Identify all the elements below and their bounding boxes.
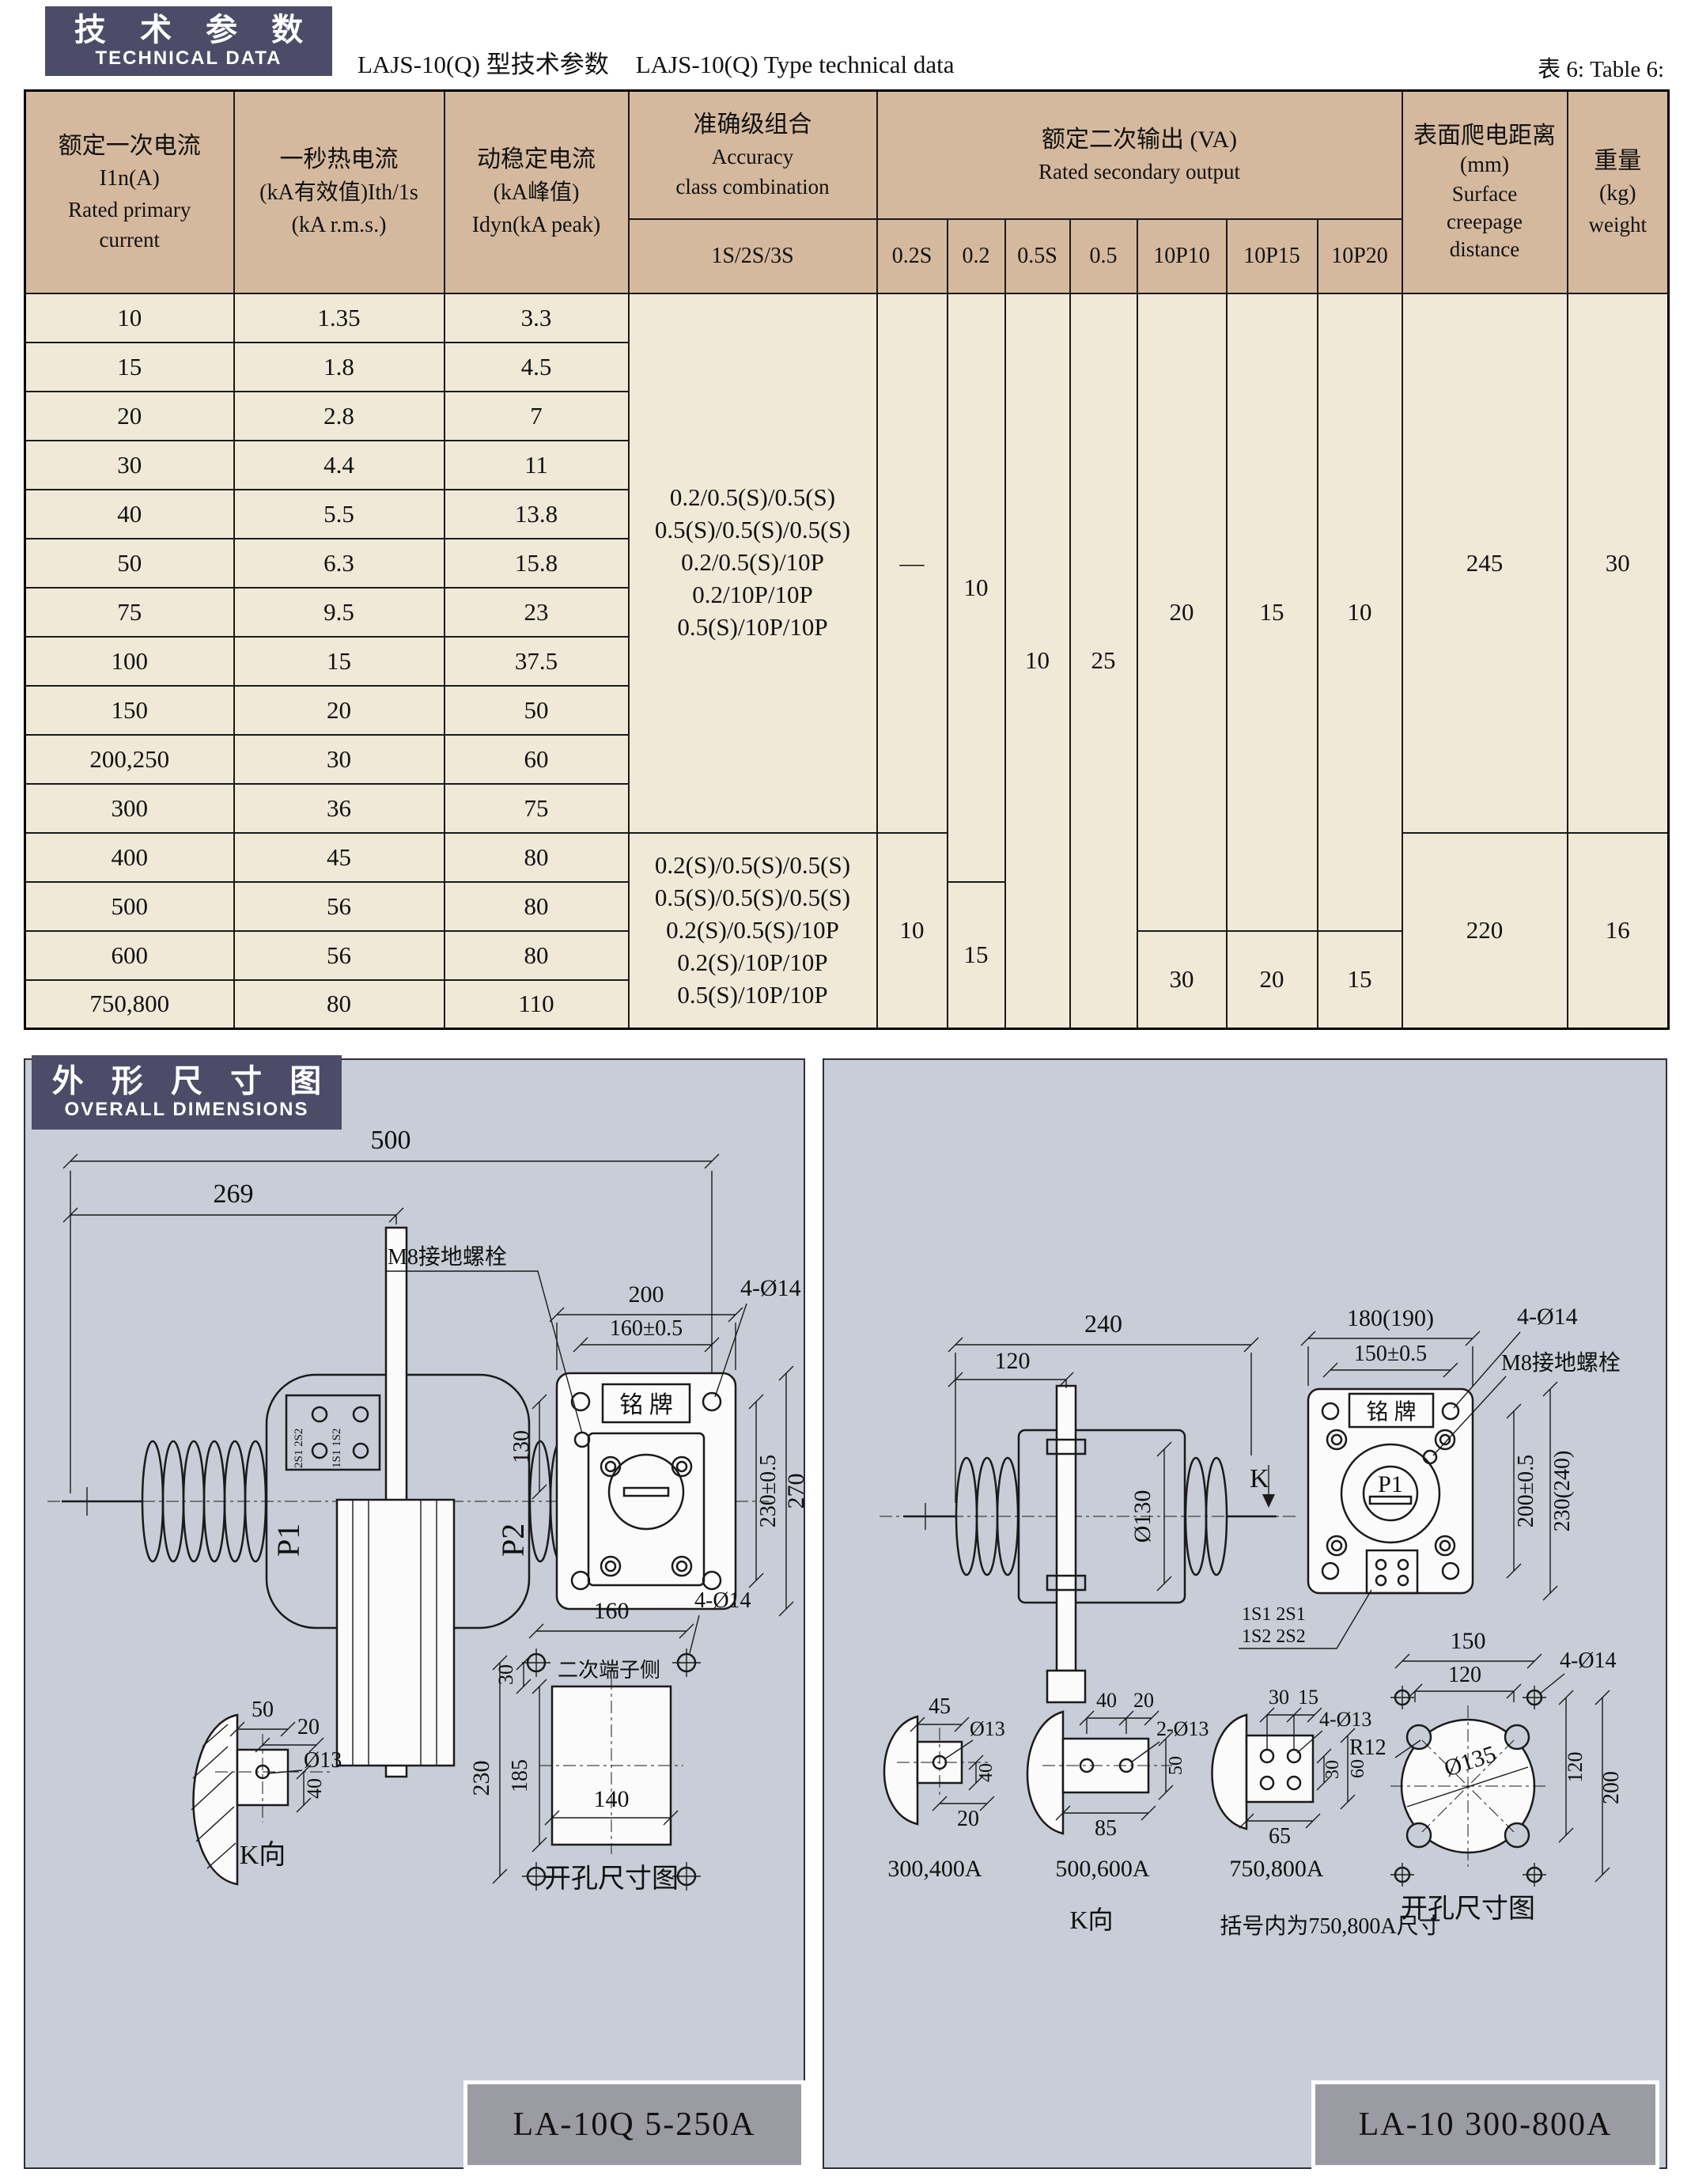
secondary-terminal-side-note: 二次端子侧 bbox=[558, 1659, 660, 1682]
m8-ground-bolt-label: M8接地螺栓 bbox=[388, 1244, 507, 1270]
dim-140: 140 bbox=[594, 1786, 630, 1812]
cell-dynamic: 15.8 bbox=[445, 539, 629, 588]
dim-40: 40 bbox=[1096, 1689, 1117, 1712]
col-header-secondary-output: 额定二次输出 (VA) Rated secondary output bbox=[877, 91, 1402, 219]
cell-dynamic: 110 bbox=[445, 980, 629, 1029]
opening-caption: 开孔尺寸图 bbox=[1401, 1894, 1535, 1924]
holes-4d14-label: 4-Ø14 bbox=[740, 1275, 801, 1301]
dim-40: 40 bbox=[976, 1763, 997, 1782]
m8-ground-bolt-label: M8接地螺栓 bbox=[1501, 1350, 1621, 1376]
dim-180-190: 180(190) bbox=[1347, 1305, 1434, 1331]
col-header-10P15: 10P15 bbox=[1227, 219, 1318, 293]
dim-130: 130 bbox=[509, 1430, 534, 1463]
cell-thermal: 56 bbox=[234, 931, 445, 980]
cell-thermal: 56 bbox=[234, 882, 445, 931]
dim-200-05: 200±0.5 bbox=[1514, 1455, 1538, 1527]
cell-current: 30 bbox=[25, 441, 234, 490]
page-title-cn: LAJS-10(Q) 型技术参数 bbox=[357, 51, 609, 78]
cell-thermal: 4.4 bbox=[234, 441, 445, 490]
cell-current: 750,800 bbox=[25, 980, 234, 1029]
cell-thermal: 30 bbox=[234, 735, 445, 784]
model-caption-la10q: LA-10Q 5-250A bbox=[463, 2080, 805, 2169]
holes-4d14-label: 4-Ø14 bbox=[1517, 1304, 1578, 1330]
dim-185: 185 bbox=[508, 1759, 532, 1792]
dim-85: 85 bbox=[1095, 1816, 1117, 1841]
dim-60: 60 bbox=[1348, 1759, 1368, 1778]
cell-current: 100 bbox=[25, 637, 234, 686]
cell-dynamic: 23 bbox=[445, 588, 629, 637]
cell-10P15-lower: 20 bbox=[1227, 931, 1318, 1029]
dim-65: 65 bbox=[1269, 1824, 1291, 1849]
cell-weight-upper: 30 bbox=[1568, 293, 1669, 833]
dim-230-opening: 230 bbox=[468, 1761, 494, 1796]
dim-230: 230±0.5 bbox=[756, 1455, 781, 1527]
technical-data-title-en: TECHNICAL DATA bbox=[45, 47, 332, 70]
dim-200: 200 bbox=[1599, 1771, 1624, 1804]
cell-accuracy-block1: 0.2/0.5(S)/0.5(S) 0.5(S)/0.5(S)/0.5(S) 0… bbox=[629, 293, 877, 833]
cell-current: 40 bbox=[25, 490, 234, 539]
mount-caption: 750,800A bbox=[1229, 1856, 1324, 1882]
la10-mount-750-800: 30 15 4-Ø13 30 60 65 750,800A bbox=[1212, 1686, 1371, 1882]
spec-table: 额定一次电流 I1n(A) Rated primary current 一秒热电… bbox=[24, 89, 1670, 1030]
table-number: 表 6: Table 6: bbox=[1538, 51, 1664, 84]
cell-creepage-upper: 245 bbox=[1402, 293, 1568, 833]
dim-20: 20 bbox=[297, 1715, 320, 1739]
k-view-caption: K向 bbox=[1069, 1906, 1113, 1934]
cell-dynamic: 75 bbox=[445, 784, 629, 833]
dim-45: 45 bbox=[929, 1694, 951, 1719]
dim-160: 160±0.5 bbox=[610, 1316, 683, 1341]
cell-02-lower: 15 bbox=[948, 882, 1005, 1029]
cell-dynamic: 50 bbox=[445, 686, 629, 735]
cell-10P20-lower: 15 bbox=[1318, 931, 1402, 1029]
cell-creepage-lower: 220 bbox=[1402, 833, 1568, 1029]
dim-150: 150 bbox=[1451, 1628, 1486, 1654]
cell-thermal: 36 bbox=[234, 784, 445, 833]
dia-130-label: Ø130 bbox=[1129, 1490, 1156, 1543]
col-header-thermal-current: 一秒热电流 (kA有效值)Ith/1s (kA r.m.s.) bbox=[234, 91, 445, 293]
dim-269: 269 bbox=[214, 1179, 254, 1209]
la10q-opening-diagram: 160 4-Ø14 二次端子侧 140 30 185 230 开孔尺寸图 bbox=[468, 1588, 751, 1894]
la10-mount-300-400: 45 Ø13 40 20 300,400A bbox=[884, 1694, 1005, 1882]
dim-270: 270 bbox=[783, 1474, 807, 1509]
cell-thermal: 20 bbox=[234, 686, 445, 735]
dim-120-top: 120 bbox=[1448, 1663, 1481, 1687]
model-caption-la10: LA-10 300-800A bbox=[1311, 2080, 1659, 2169]
cell-05S: 10 bbox=[1005, 293, 1070, 1029]
dim-30: 30 bbox=[1269, 1686, 1289, 1709]
la10q-drawing: 2S1 2S2 1S1 1S2 P1 P2 K 500 269 bbox=[25, 1060, 807, 2167]
la10-primary-blade bbox=[1057, 1386, 1076, 1671]
drawing-panel-la10: Ø130 240 120 K 铭 牌 P1 bbox=[823, 1058, 1667, 2169]
cell-current: 400 bbox=[25, 833, 234, 882]
cell-current: 500 bbox=[25, 882, 234, 931]
dim-40: 40 bbox=[303, 1778, 326, 1799]
dim-160-opening: 160 bbox=[594, 1598, 630, 1624]
cell-10P10-lower: 30 bbox=[1137, 931, 1227, 1029]
cell-thermal: 5.5 bbox=[234, 490, 445, 539]
cell-thermal: 2.8 bbox=[234, 392, 445, 441]
dim-150: 150±0.5 bbox=[1354, 1342, 1427, 1366]
dim-30: 30 bbox=[494, 1664, 517, 1685]
r12-label: R12 bbox=[1349, 1735, 1386, 1760]
cell-05: 25 bbox=[1070, 293, 1137, 1029]
technical-data-header: 技 术 参 数 TECHNICAL DATA bbox=[45, 6, 332, 76]
cell-current: 10 bbox=[25, 293, 234, 343]
k-view-caption: K向 bbox=[240, 1840, 286, 1870]
technical-data-title-cn: 技 术 参 数 bbox=[45, 13, 332, 47]
cell-02S-lower: 10 bbox=[877, 833, 948, 1029]
cell-dynamic: 37.5 bbox=[445, 637, 629, 686]
cell-thermal: 6.3 bbox=[234, 539, 445, 588]
dim-50: 50 bbox=[1166, 1756, 1186, 1775]
cell-thermal: 1.35 bbox=[234, 293, 445, 343]
mount-caption: 300,400A bbox=[887, 1856, 982, 1882]
dim-200: 200 bbox=[629, 1281, 664, 1308]
cell-accuracy-block2: 0.2(S)/0.5(S)/0.5(S) 0.5(S)/0.5(S)/0.5(S… bbox=[629, 833, 877, 1029]
cell-thermal: 80 bbox=[234, 980, 445, 1029]
cell-thermal: 45 bbox=[234, 833, 445, 882]
col-header-primary-current: 额定一次电流 I1n(A) Rated primary current bbox=[25, 91, 234, 293]
dim-500: 500 bbox=[371, 1126, 411, 1155]
hole-2d13-label: 2-Ø13 bbox=[1156, 1717, 1209, 1740]
mount-caption: 500,600A bbox=[1055, 1856, 1150, 1882]
dim-30b: 30 bbox=[1322, 1760, 1343, 1779]
cell-dynamic: 80 bbox=[445, 931, 629, 980]
cell-dynamic: 60 bbox=[445, 735, 629, 784]
col-header-dynamic-current: 动稳定电流 (kA峰值) Idyn(kA peak) bbox=[445, 91, 629, 293]
p1-label: P1 bbox=[270, 1524, 306, 1557]
hole-d13-label: Ø13 bbox=[970, 1717, 1005, 1740]
cell-thermal: 9.5 bbox=[234, 588, 445, 637]
dim-230-240: 230(240) bbox=[1550, 1451, 1575, 1532]
cell-dynamic: 3.3 bbox=[445, 293, 629, 343]
overall-dimensions-header: 外 形 尺 寸 图 OVERALL DIMENSIONS bbox=[32, 1055, 342, 1130]
cell-current: 50 bbox=[25, 539, 234, 588]
drawing-panel-la10q: 2S1 2S2 1S1 1S2 P1 P2 K 500 269 bbox=[24, 1058, 805, 2169]
col-header-weight: 重量 (kg) weight bbox=[1568, 91, 1669, 293]
cell-dynamic: 11 bbox=[445, 441, 629, 490]
col-header-accuracy: 准确级组合 Accuracy class combination bbox=[629, 91, 877, 219]
col-header-creepage: 表面爬电距离 (mm) Surface creepage distance bbox=[1402, 91, 1568, 293]
cell-current: 75 bbox=[25, 588, 234, 637]
page-title: LAJS-10(Q) 型技术参数LAJS-10(Q) Type technica… bbox=[357, 44, 981, 80]
cell-dynamic: 80 bbox=[445, 833, 629, 882]
dim-50: 50 bbox=[252, 1698, 274, 1722]
la10-front-view: 铭 牌 P1 4-Ø14 M8接地螺栓 180(190) bbox=[1239, 1304, 1621, 1648]
cell-current: 20 bbox=[25, 392, 234, 441]
dim-15: 15 bbox=[1298, 1686, 1318, 1709]
p1-label: P1 bbox=[1378, 1471, 1403, 1497]
cell-10P15-upper: 15 bbox=[1227, 293, 1318, 931]
opening-4d14-label: 4-Ø14 bbox=[694, 1588, 751, 1613]
cell-dynamic: 80 bbox=[445, 882, 629, 931]
terminal-label-1s1-2s1: 1S1 2S1 bbox=[1242, 1604, 1306, 1625]
overall-dimensions-cn: 外 形 尺 寸 图 bbox=[32, 1064, 342, 1099]
cell-current: 600 bbox=[25, 931, 234, 980]
col-header-10P10: 10P10 bbox=[1137, 219, 1227, 293]
la10-opening-diagram: 150 120 4-Ø14 Ø135 R12 120 bbox=[1349, 1628, 1624, 1924]
cell-02S-upper: — bbox=[877, 293, 948, 833]
col-header-10P20: 10P20 bbox=[1318, 219, 1402, 293]
col-header-05: 0.5 bbox=[1070, 219, 1137, 293]
cell-02-upper: 10 bbox=[948, 293, 1005, 882]
la10-side-view: Ø130 240 120 K bbox=[880, 1309, 1299, 1702]
cell-current: 200,250 bbox=[25, 735, 234, 784]
cell-current: 300 bbox=[25, 784, 234, 833]
p2-label: P2 bbox=[495, 1524, 531, 1557]
cell-dynamic: 13.8 bbox=[445, 490, 629, 539]
col-header-02: 0.2 bbox=[948, 219, 1005, 293]
cell-10P20-upper: 10 bbox=[1318, 293, 1402, 931]
table-row: 10 1.35 3.3 0.2/0.5(S)/0.5(S) 0.5(S)/0.5… bbox=[25, 293, 1669, 343]
cell-thermal: 1.8 bbox=[234, 343, 445, 392]
hole-d13-label: Ø13 bbox=[304, 1748, 342, 1773]
hole-4d13-label: 4-Ø13 bbox=[1319, 1708, 1371, 1731]
cell-thermal: 15 bbox=[234, 637, 445, 686]
dim-20: 20 bbox=[1133, 1689, 1154, 1712]
terminal-label-2s: 2S1 2S2 bbox=[293, 1429, 305, 1468]
dim-120: 120 bbox=[995, 1348, 1031, 1374]
col-header-1s2s3s: 1S/2S/3S bbox=[629, 219, 877, 293]
la10-mount-500-600: 40 20 2-Ø13 50 85 500,600A K向 bbox=[1027, 1689, 1209, 1934]
col-header-02S: 0.2S bbox=[877, 219, 948, 293]
k-arrow-label: K bbox=[1250, 1464, 1269, 1493]
cell-dynamic: 4.5 bbox=[445, 343, 629, 392]
cell-weight-lower: 16 bbox=[1568, 833, 1669, 1029]
overall-dimensions-en: OVERALL DIMENSIONS bbox=[32, 1099, 342, 1122]
cell-10P10-upper: 20 bbox=[1137, 293, 1227, 931]
col-header-05S: 0.5S bbox=[1005, 219, 1070, 293]
opening-caption: 开孔尺寸图 bbox=[544, 1864, 679, 1894]
terminal-label-1s: 1S1 1S2 bbox=[331, 1429, 343, 1468]
la10q-k-view: 50 20 Ø13 40 K向 bbox=[191, 1698, 342, 1884]
terminal-label-1s2-2s2: 1S2 2S2 bbox=[1242, 1626, 1306, 1647]
opening-4d14-label: 4-Ø14 bbox=[1560, 1648, 1617, 1673]
page-title-en: LAJS-10(Q) Type technical data bbox=[636, 51, 955, 78]
la10-drawing: Ø130 240 120 K 铭 牌 P1 bbox=[824, 1060, 1669, 2167]
cell-dynamic: 7 bbox=[445, 392, 629, 441]
nameplate-label: 铭 牌 bbox=[619, 1392, 673, 1418]
dim-120-right: 120 bbox=[1564, 1752, 1587, 1783]
dim-240: 240 bbox=[1084, 1309, 1122, 1338]
cell-current: 150 bbox=[25, 686, 234, 735]
cell-current: 15 bbox=[25, 343, 234, 392]
datasheet-page: 技 术 参 数 TECHNICAL DATA LAJS-10(Q) 型技术参数L… bbox=[0, 0, 1691, 2184]
dim-20: 20 bbox=[957, 1807, 979, 1831]
table-row: 400 45 80 0.2(S)/0.5(S)/0.5(S) 0.5(S)/0.… bbox=[25, 833, 1669, 882]
nameplate-label: 铭 牌 bbox=[1366, 1399, 1416, 1425]
